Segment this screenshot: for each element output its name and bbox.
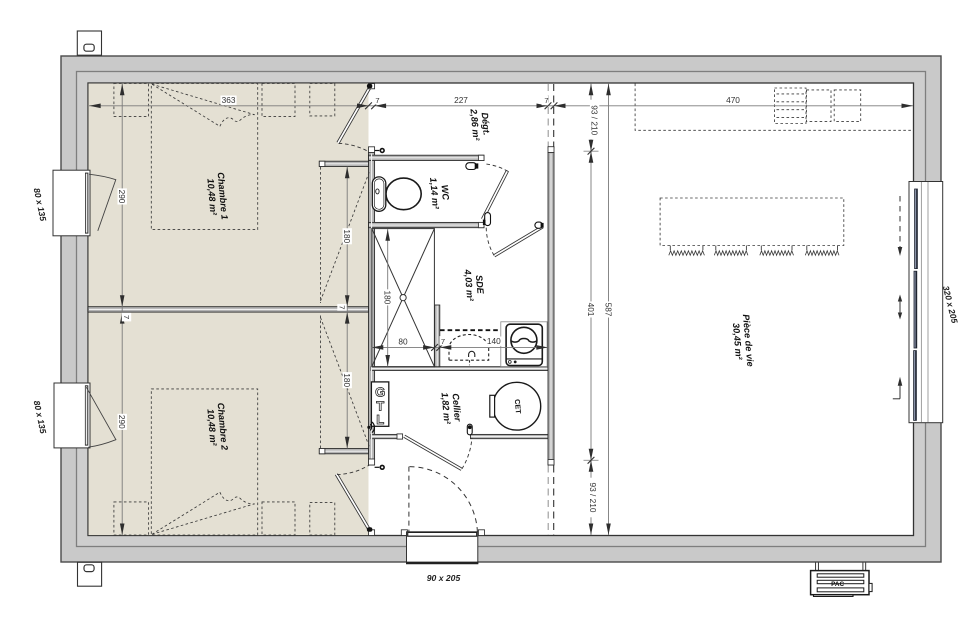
svg-text:7: 7 [544, 96, 548, 105]
svg-text:80: 80 [398, 336, 408, 346]
svg-text:290: 290 [117, 415, 127, 429]
svg-text:PAC: PAC [831, 581, 844, 588]
svg-text:L: L [376, 412, 384, 427]
svg-text:7: 7 [122, 315, 131, 319]
svg-text:CET: CET [513, 399, 523, 415]
svg-text:7: 7 [338, 305, 347, 309]
svg-text:140: 140 [487, 336, 501, 346]
svg-text:180: 180 [342, 229, 352, 243]
svg-text:401: 401 [586, 303, 596, 317]
svg-text:7: 7 [375, 96, 379, 105]
svg-text:363: 363 [222, 95, 236, 105]
svg-text:WC: WC [440, 184, 451, 200]
svg-text:290: 290 [117, 190, 127, 204]
svg-text:180: 180 [342, 373, 352, 387]
svg-text:SDE: SDE [474, 275, 486, 296]
svg-text:470: 470 [726, 95, 740, 105]
svg-text:587: 587 [604, 303, 614, 317]
svg-text:227: 227 [454, 95, 468, 105]
svg-text:93 / 210: 93 / 210 [590, 105, 600, 135]
svg-text:180: 180 [383, 290, 393, 304]
svg-text:90 x 205: 90 x 205 [427, 573, 461, 583]
svg-text:7: 7 [441, 337, 445, 346]
svg-text:G: G [375, 385, 385, 400]
svg-text:93 / 210: 93 / 210 [588, 483, 598, 513]
